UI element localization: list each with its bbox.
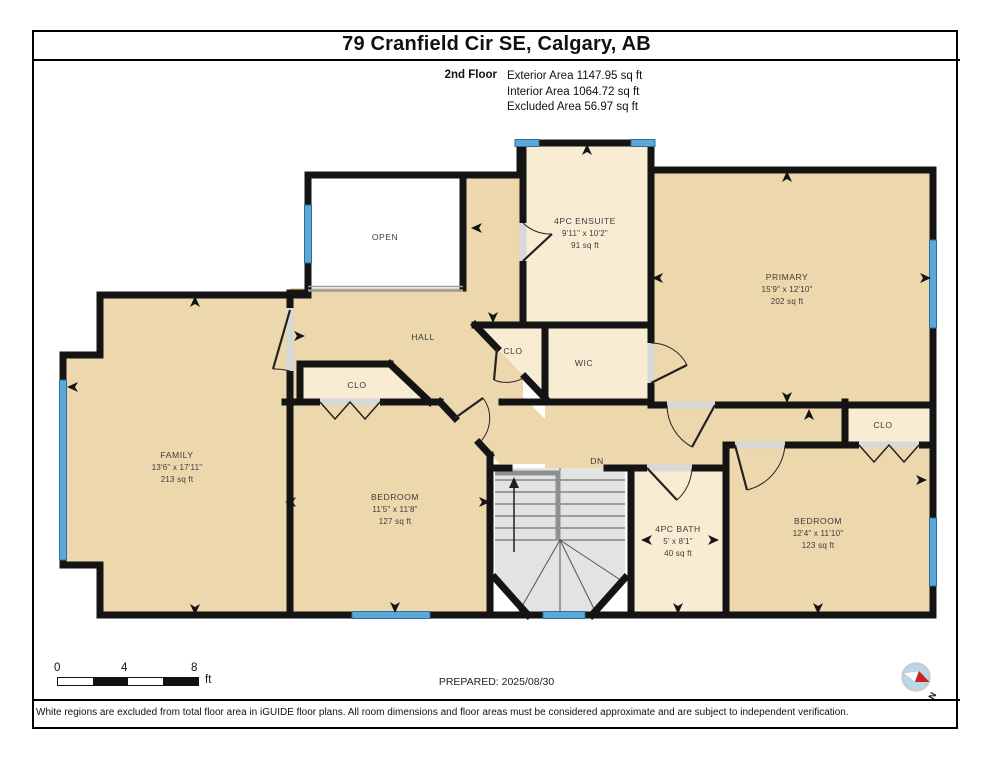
room-label-clo-hall: CLO (503, 346, 522, 356)
window-open (305, 205, 312, 263)
room-dims-bath: 5' x 8'1" (663, 537, 693, 546)
room-label-family: FAMILY (161, 450, 194, 460)
stairs-down-label: DN (590, 456, 603, 466)
area-summary: Exterior Area 1147.95 sq ft Interior Are… (507, 69, 642, 116)
room-area-bath: 40 sq ft (664, 549, 692, 558)
room-area-primary: 202 sq ft (771, 297, 804, 306)
window-ensuite-left (515, 140, 539, 147)
room-dims-ensuite: 9'11" x 10'2" (562, 229, 608, 238)
interior-area: Interior Area 1064.72 sq ft (507, 85, 642, 101)
prepared-date: PREPARED: 2025/08/30 (0, 676, 993, 688)
room-label-ensuite: 4PC ENSUITE (554, 216, 616, 226)
room-label-wic: WIC (575, 358, 593, 368)
room-label-bedroom1: BEDROOM (371, 492, 419, 502)
floor-plan: OPEN 4PC ENSUITE 9'11" x 10'2" 91 sq ft … (47, 128, 947, 658)
window-stairwell (543, 612, 585, 619)
room-area-family: 213 sq ft (161, 475, 194, 484)
room-area-bedroom2: 123 sq ft (802, 541, 835, 550)
room-label-open: OPEN (372, 232, 398, 242)
floor-label: 2nd Floor (352, 69, 497, 81)
room-label-bedroom2: BEDROOM (794, 516, 842, 526)
room-area-ensuite: 91 sq ft (571, 241, 599, 250)
room-label-bath: 4PC BATH (655, 524, 700, 534)
page-title: 79 Cranfield Cir SE, Calgary, AB (0, 33, 993, 56)
scale-tick-0: 0 (54, 662, 60, 674)
excluded-area: Excluded Area 56.97 sq ft (507, 100, 642, 116)
window-ensuite-right (631, 140, 655, 147)
room-area-bedroom1: 127 sq ft (379, 517, 412, 526)
scale-tick-8: 8 (191, 662, 197, 674)
room-label-primary: PRIMARY (766, 272, 809, 282)
window-primary (930, 240, 937, 328)
room-dims-primary: 15'9" x 12'10" (761, 285, 812, 294)
title-divider (32, 59, 960, 61)
room-dims-bedroom2: 12'4" x 11'10" (793, 529, 844, 538)
disclaimer-text: White regions are excluded from total fl… (36, 707, 956, 718)
window-bedroom1 (352, 612, 430, 619)
staircase (495, 468, 625, 615)
footer-divider (32, 699, 960, 701)
room-wic-floor (545, 325, 651, 402)
room-dims-bedroom1: 11'5" x 11'8" (372, 505, 417, 514)
window-family (60, 380, 67, 560)
scale-tick-4: 4 (121, 662, 127, 674)
window-bedroom2 (930, 518, 937, 586)
room-dims-family: 13'6" x 17'11" (152, 463, 203, 472)
exterior-area: Exterior Area 1147.95 sq ft (507, 69, 642, 85)
floorplan-page: 79 Cranfield Cir SE, Calgary, AB 2nd Flo… (0, 0, 993, 768)
room-label-clo-bedroom1: CLO (347, 380, 366, 390)
room-label-clo-bedroom2: CLO (873, 420, 892, 430)
room-label-hall: HALL (411, 332, 435, 342)
